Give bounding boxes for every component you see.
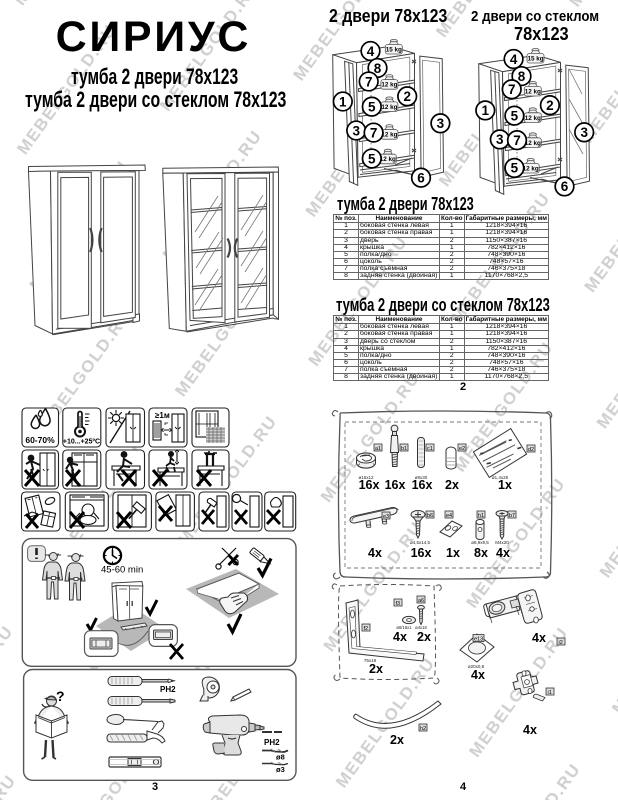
- svg-text:1: 1: [482, 103, 490, 118]
- svg-text:1x: 1x: [498, 478, 512, 492]
- svg-text:6: 6: [561, 179, 569, 194]
- svg-text:PH2: PH2: [160, 685, 176, 694]
- svg-text:ø8: ø8: [276, 753, 285, 762]
- svg-text:d2: d2: [528, 447, 534, 453]
- svg-text:16x: 16x: [412, 478, 433, 492]
- svg-text:16x: 16x: [411, 546, 432, 560]
- svg-text:f3: f3: [396, 601, 401, 607]
- svg-text:2x: 2x: [417, 630, 431, 644]
- svg-text:2x: 2x: [369, 662, 383, 676]
- svg-text:b1: b1: [401, 446, 407, 452]
- svg-text:4x: 4x: [532, 631, 546, 645]
- svg-text:M4x20: M4x20: [495, 540, 509, 545]
- svg-text:60-70%: 60-70%: [25, 435, 55, 445]
- svg-text:f2: f2: [364, 626, 369, 632]
- svg-text:45-60 min: 45-60 min: [101, 565, 143, 576]
- svg-text:12 kg: 12 kg: [381, 82, 397, 89]
- svg-text:16x: 16x: [359, 478, 380, 492]
- svg-text:+10...+25ºC: +10...+25ºC: [63, 439, 100, 446]
- svg-text:12 kg: 12 kg: [525, 115, 541, 122]
- svg-text:h1: h1: [478, 513, 484, 519]
- svg-text:2x: 2x: [390, 733, 404, 747]
- svg-text:8x: 8x: [474, 546, 488, 560]
- svg-text:ø3: ø3: [276, 765, 285, 774]
- svg-text:8: 8: [518, 69, 526, 84]
- svg-text:3: 3: [352, 123, 360, 138]
- svg-text:2: 2: [403, 89, 411, 104]
- svg-text:12 kg: 12 kg: [380, 156, 396, 163]
- svg-text:PH2: PH2: [264, 738, 280, 747]
- svg-text:12 kg: 12 kg: [381, 132, 397, 139]
- svg-text:12 kg: 12 kg: [523, 165, 539, 172]
- svg-text:5: 5: [511, 161, 519, 176]
- svg-text:ø4,5x14,5: ø4,5x14,5: [410, 540, 431, 545]
- svg-text:e3: e3: [383, 514, 389, 520]
- svg-text:5: 5: [511, 109, 519, 124]
- svg-text:c1: c1: [427, 446, 433, 452]
- svg-text:3: 3: [437, 116, 445, 131]
- svg-text:4: 4: [510, 52, 518, 67]
- svg-text:h2: h2: [420, 726, 426, 732]
- svg-text:2x: 2x: [445, 478, 459, 492]
- svg-text:7: 7: [365, 74, 373, 89]
- svg-text:≥1м: ≥1м: [155, 411, 170, 420]
- svg-text:2: 2: [546, 98, 554, 113]
- svg-text:e2: e2: [459, 446, 465, 452]
- svg-text:i2: i2: [559, 640, 563, 646]
- svg-text:5: 5: [368, 100, 376, 115]
- svg-text:12 kg: 12 kg: [525, 88, 541, 95]
- svg-text:1x: 1x: [446, 546, 460, 560]
- svg-text:e13: e13: [474, 636, 483, 642]
- svg-text:16x: 16x: [385, 478, 406, 492]
- svg-text:ø8,9x9,5: ø8,9x9,5: [471, 540, 489, 545]
- svg-text:a1: a1: [375, 446, 381, 452]
- svg-text:7: 7: [370, 125, 378, 140]
- svg-text:i1: i1: [548, 690, 552, 696]
- svg-text:7: 7: [513, 133, 521, 148]
- svg-text:6: 6: [417, 171, 425, 186]
- svg-text:4x: 4x: [523, 723, 537, 737]
- svg-text:?: ?: [56, 688, 65, 704]
- svg-text:b6: b6: [427, 513, 433, 519]
- svg-text:3: 3: [496, 132, 504, 147]
- svg-text:4x: 4x: [393, 630, 407, 644]
- svg-text:7: 7: [508, 82, 516, 97]
- svg-text:4: 4: [367, 44, 375, 59]
- svg-text:1: 1: [339, 94, 347, 109]
- svg-text:12 kg: 12 kg: [381, 104, 397, 111]
- svg-text:15 kg: 15 kg: [386, 46, 402, 53]
- svg-text:3: 3: [580, 125, 588, 140]
- svg-text:4x: 4x: [496, 546, 510, 560]
- svg-text:12 kg: 12 kg: [525, 140, 541, 147]
- svg-text:15 kg: 15 kg: [527, 55, 543, 62]
- svg-text:4x: 4x: [368, 546, 382, 560]
- svg-text:4x: 4x: [471, 668, 485, 682]
- svg-text:e4: e4: [446, 513, 452, 519]
- svg-text:b7: b7: [509, 513, 515, 519]
- svg-text:a6: a6: [418, 598, 424, 604]
- svg-text:5: 5: [368, 151, 376, 166]
